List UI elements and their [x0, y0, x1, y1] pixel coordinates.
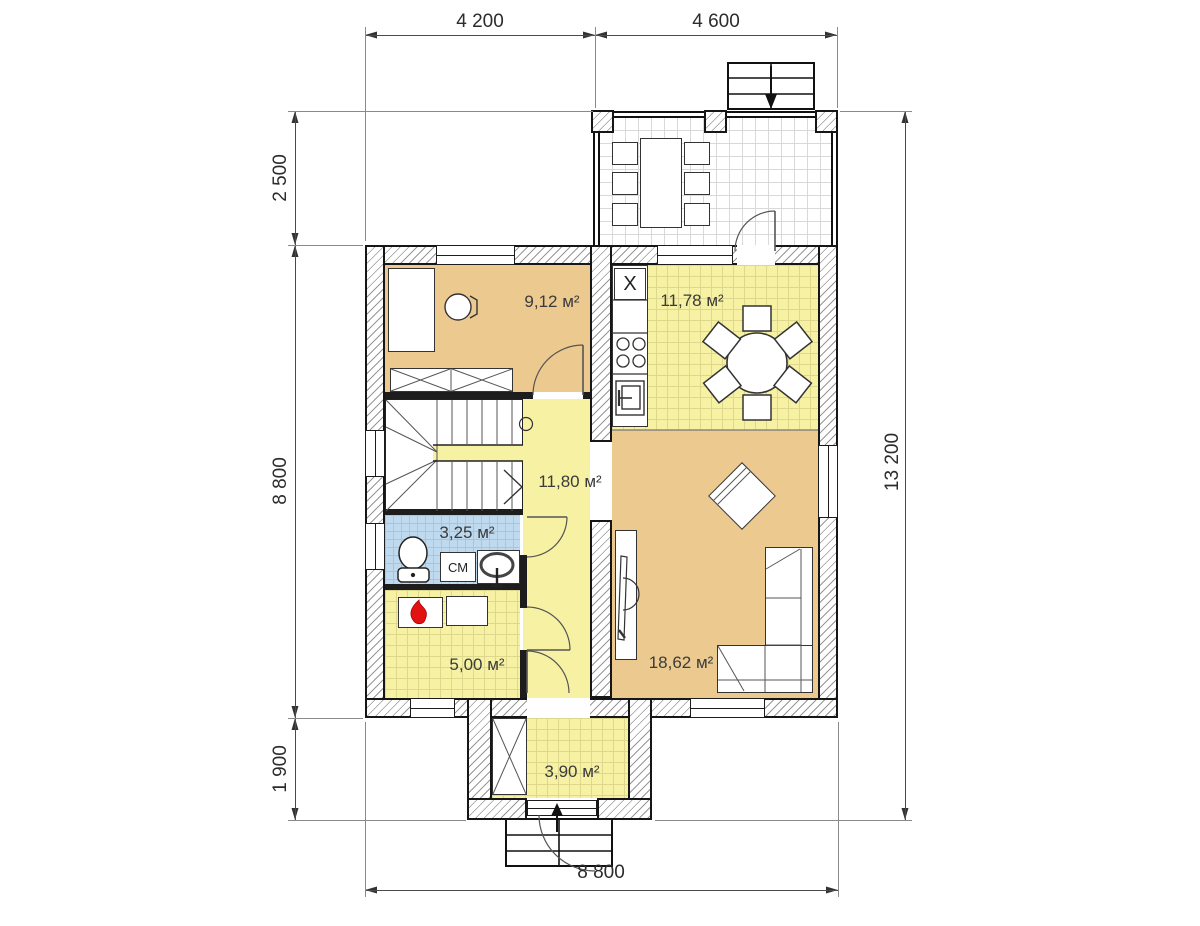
door-opening-terrace	[737, 245, 775, 265]
wall-stairs-bath	[385, 509, 523, 515]
terrace-pillar	[815, 110, 838, 133]
dim-line-left	[295, 111, 296, 820]
ext-line	[365, 27, 366, 241]
wall-bath-right	[520, 555, 527, 590]
wall-left	[365, 245, 385, 718]
vestibule-wall-bottom-r	[597, 798, 652, 820]
entry-area-label: 3,90 м²	[544, 762, 599, 782]
ext-line	[837, 27, 838, 108]
boiler-cabinet	[446, 596, 488, 626]
ext-line	[365, 722, 366, 897]
ext-line	[288, 718, 363, 719]
window-study	[436, 245, 515, 265]
terrace-chair	[684, 172, 710, 195]
window-kitchen-terrace	[657, 245, 733, 265]
dim-line-top	[365, 35, 837, 36]
wall-kitchen-partition-upper	[590, 245, 612, 442]
wall-study-bottom	[385, 392, 533, 399]
bath-sink-counter	[477, 550, 520, 584]
terrace-chair	[612, 142, 638, 165]
terrace-pillar	[704, 110, 727, 133]
stair-landing	[433, 445, 523, 461]
dim-right-1: 13 200	[882, 433, 904, 491]
terrace-pillar	[591, 110, 614, 133]
terrace-chair	[612, 203, 638, 226]
study-wardrobe	[390, 368, 513, 392]
wall-boiler-right-a	[520, 590, 527, 608]
ext-line	[655, 820, 912, 821]
wall-boiler-right-b	[520, 650, 527, 698]
window-boiler	[410, 698, 455, 718]
wall-bath-boiler	[385, 584, 523, 590]
ext-line	[288, 245, 363, 246]
dim-line-bottom	[365, 890, 838, 891]
dim-left-1: 2 500	[270, 154, 292, 202]
dim-left-2: 8 800	[270, 457, 292, 505]
window-living-bottom	[690, 698, 765, 718]
wall-study-bottom-stub	[583, 392, 590, 399]
terrace-steps	[727, 62, 815, 110]
entry-wardrobe	[492, 718, 527, 795]
wall-kitchen-partition-lower	[590, 520, 612, 698]
vestibule-wall-bottom-l	[467, 798, 527, 820]
study-area-label: 9,12 м²	[524, 292, 579, 312]
terrace-table	[640, 138, 682, 228]
terrace-chair	[612, 172, 638, 195]
boiler-area-label: 5,00 м²	[449, 655, 504, 675]
door-opening-hall-vestibule	[527, 698, 590, 718]
kitchen-sink-symbol: X	[614, 268, 646, 300]
study-bed	[388, 268, 435, 352]
tv-stand	[615, 530, 637, 660]
window-stairs	[365, 430, 385, 477]
bath-area-label: 3,25 м²	[439, 523, 494, 543]
kitchen-area-label: 11,78 м²	[660, 291, 723, 311]
floor-plan: X СМ	[0, 0, 1200, 926]
hall-area-label: 11,80 м²	[538, 472, 601, 492]
ext-line	[840, 111, 912, 112]
ext-line	[838, 722, 839, 897]
ext-line	[288, 820, 466, 821]
dim-top-1: 4 200	[456, 11, 504, 33]
entrance-steps	[505, 818, 613, 867]
entrance-door-threshold	[527, 800, 597, 816]
ext-line	[595, 27, 596, 108]
terrace-chair	[684, 203, 710, 226]
dim-left-3: 1 900	[270, 745, 292, 793]
living-area-label: 18,62 м²	[649, 653, 714, 673]
window-bath	[365, 523, 385, 570]
boiler-unit	[398, 597, 443, 628]
terrace-chair	[684, 142, 710, 165]
ext-line	[288, 111, 593, 112]
dim-bottom-1: 8 800	[577, 862, 625, 884]
washing-machine-label: СМ	[440, 552, 476, 582]
dim-top-2: 4 600	[692, 11, 740, 33]
hall-floor	[523, 399, 590, 698]
dim-line-right	[905, 111, 906, 820]
sofa-horizontal	[717, 645, 813, 693]
window-living-right	[818, 445, 838, 518]
